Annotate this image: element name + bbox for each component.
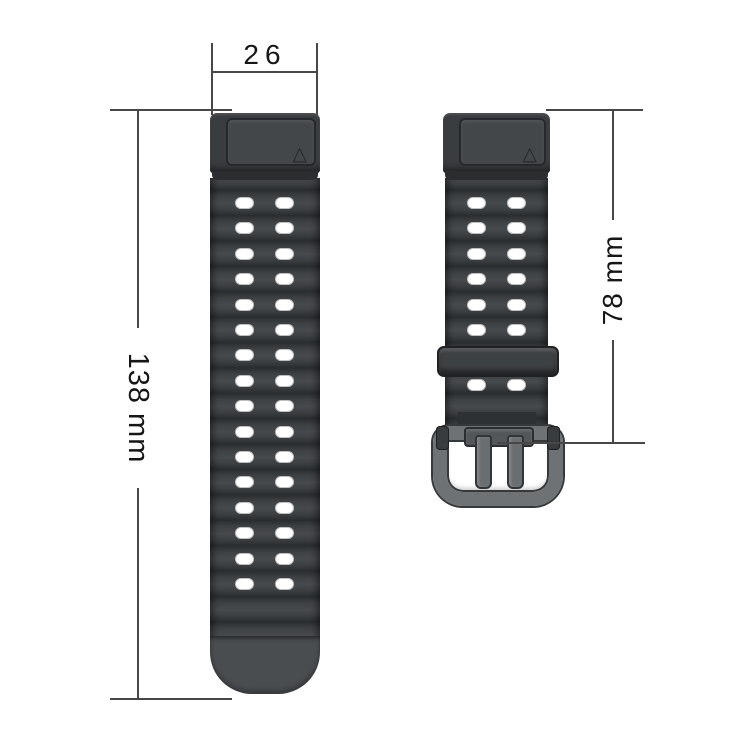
strap-hole [467, 197, 486, 209]
connector-plate: △ [459, 118, 546, 166]
strap-hole [275, 222, 294, 234]
strap-hole [467, 273, 486, 285]
strap-hole [275, 299, 294, 311]
strap-hole [235, 248, 254, 260]
keeper-loop [437, 346, 559, 377]
triangle-mark-icon: △ [292, 145, 307, 164]
strap-hole [467, 222, 486, 234]
width-dimension-label: 26 [212, 38, 318, 72]
strap-hole [507, 273, 526, 285]
extension-line [110, 698, 232, 700]
strap-band [445, 178, 548, 425]
strap-hole [275, 476, 294, 488]
short-strap-length-label: 78 mm [596, 220, 630, 340]
product-diagram: △ △ 26 [0, 0, 750, 750]
strap-hole [235, 426, 254, 438]
strap-hole [467, 379, 486, 391]
strap-hole [235, 476, 254, 488]
strap-holes [0, 0, 750, 750]
strap-hole [275, 451, 294, 463]
buckle-hinge [436, 426, 449, 450]
strap-hole [275, 349, 294, 361]
strap-hole [275, 527, 294, 539]
strap-band [210, 178, 320, 640]
strap-hole [235, 349, 254, 361]
strap-hole [275, 273, 294, 285]
buckle-hinge [547, 426, 560, 450]
strap-hole [235, 527, 254, 539]
strap-hole [275, 197, 294, 209]
long-strap-length-label: 138 mm [121, 328, 155, 488]
strap-hole [507, 324, 526, 336]
strap-hole [235, 324, 254, 336]
extension-line [110, 109, 232, 111]
watch-lug-connector: △ [443, 113, 550, 173]
buckle-prong [475, 435, 492, 489]
connector-lip [212, 171, 318, 180]
strap-hole [275, 324, 294, 336]
strap-hole [235, 273, 254, 285]
strap-hole [235, 222, 254, 234]
strap-hole [275, 502, 294, 514]
strap-hole [275, 578, 294, 590]
strap-hole [235, 197, 254, 209]
strap-hole [235, 400, 254, 412]
strap-hole [507, 222, 526, 234]
triangle-mark-icon: △ [522, 145, 537, 164]
strap-hole [507, 197, 526, 209]
strap-hole [275, 553, 294, 565]
strap-hole [467, 248, 486, 260]
strap-hole [235, 299, 254, 311]
extension-line [497, 442, 645, 444]
strap-hole [235, 375, 254, 387]
strap-hole [235, 502, 254, 514]
connector-plate: △ [226, 118, 316, 166]
strap-hole [275, 248, 294, 260]
strap-hole [235, 578, 254, 590]
strap-hole [507, 299, 526, 311]
strap-hole [275, 375, 294, 387]
strap-hole [507, 248, 526, 260]
strap-tip [210, 636, 320, 694]
extension-line [546, 109, 643, 111]
strap-hole [275, 426, 294, 438]
strap-hole [235, 451, 254, 463]
watch-lug-connector: △ [210, 113, 320, 173]
strap-hole [235, 553, 254, 565]
strap-hole [507, 379, 526, 391]
connector-lip [445, 171, 548, 180]
strap-hole [275, 400, 294, 412]
strap-hole [467, 324, 486, 336]
strap-hole [467, 299, 486, 311]
